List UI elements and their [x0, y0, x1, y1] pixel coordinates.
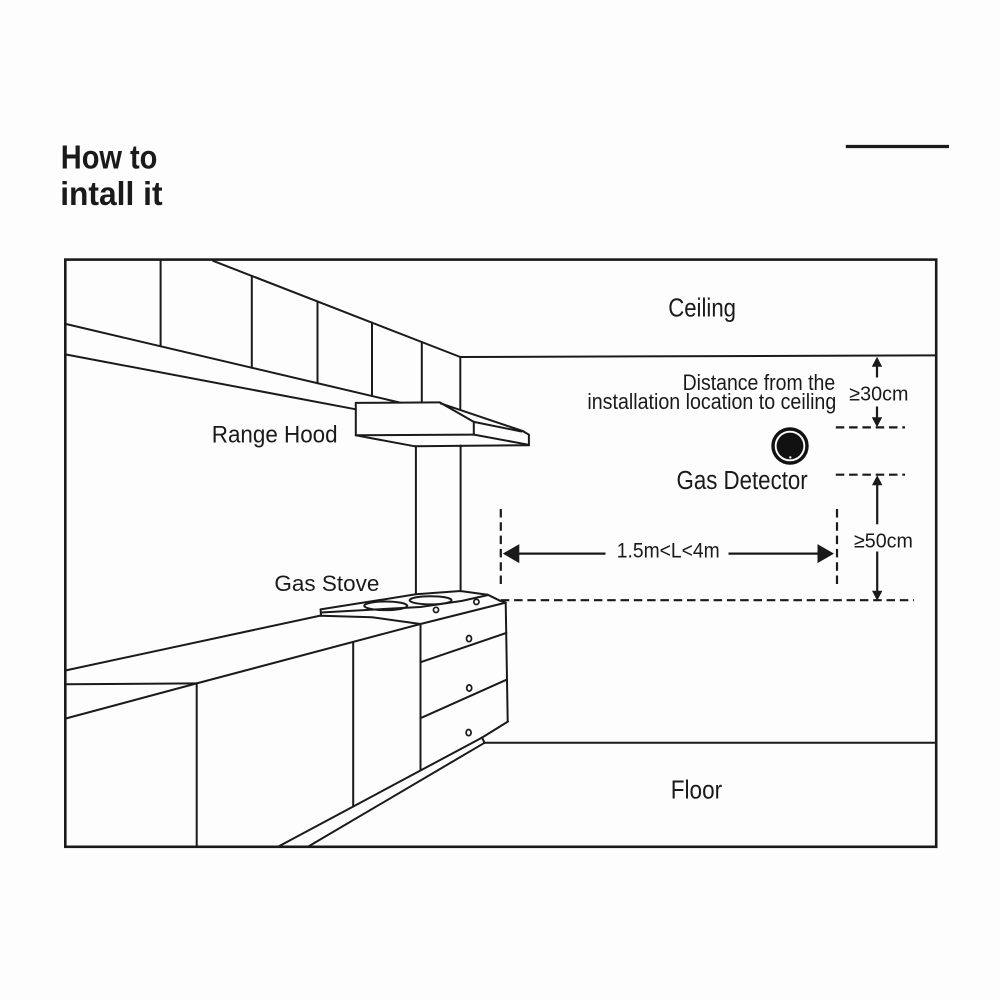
- svg-text:Floor: Floor: [671, 777, 723, 805]
- svg-text:≥30cm: ≥30cm: [849, 383, 908, 406]
- svg-text:intall it: intall it: [60, 176, 162, 213]
- svg-text:How to: How to: [61, 140, 158, 177]
- svg-text:Gas Stove: Gas Stove: [274, 571, 379, 596]
- svg-text:≥50cm: ≥50cm: [854, 530, 913, 553]
- svg-text:Gas Detector: Gas Detector: [677, 467, 809, 495]
- svg-text:1.5m<L<4m: 1.5m<L<4m: [617, 538, 720, 562]
- svg-text:Range Hood: Range Hood: [212, 422, 338, 449]
- svg-text:Ceiling: Ceiling: [668, 295, 736, 323]
- svg-text:installation location to ceili: installation location to ceiling: [587, 389, 836, 414]
